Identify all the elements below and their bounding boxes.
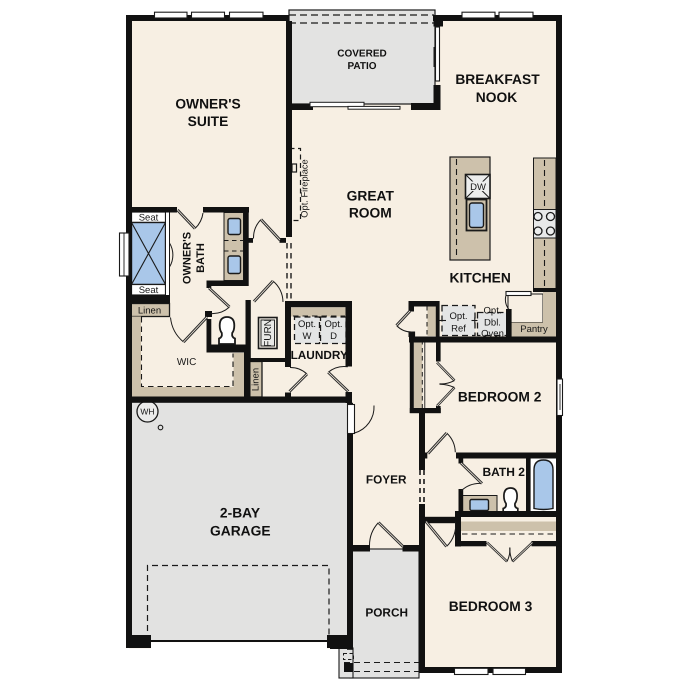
svg-text:Pantry: Pantry bbox=[520, 324, 548, 335]
svg-text:BATH: BATH bbox=[195, 243, 207, 273]
svg-text:WH: WH bbox=[140, 407, 154, 417]
svg-text:Ref: Ref bbox=[451, 324, 466, 335]
svg-text:FURN: FURN bbox=[263, 319, 274, 347]
svg-text:Oven: Oven bbox=[481, 328, 504, 339]
svg-text:D: D bbox=[330, 331, 337, 342]
svg-text:W: W bbox=[303, 331, 312, 342]
svg-text:FOYER: FOYER bbox=[366, 472, 407, 486]
svg-text:OWNER'S: OWNER'S bbox=[182, 232, 194, 284]
svg-text:Opt.: Opt. bbox=[450, 311, 468, 322]
svg-text:WIC: WIC bbox=[177, 357, 196, 368]
svg-text:Seat: Seat bbox=[139, 285, 159, 296]
svg-text:COVERED: COVERED bbox=[337, 49, 386, 60]
svg-text:2-BAY: 2-BAY bbox=[220, 505, 260, 520]
svg-text:GREAT: GREAT bbox=[347, 188, 395, 203]
svg-text:PATIO: PATIO bbox=[347, 61, 376, 72]
svg-text:LAUNDRY: LAUNDRY bbox=[291, 348, 348, 362]
svg-text:Opt.: Opt. bbox=[298, 319, 316, 330]
svg-text:BEDROOM 2: BEDROOM 2 bbox=[458, 390, 542, 405]
svg-text:Opt.: Opt. bbox=[484, 306, 502, 317]
svg-text:Linen: Linen bbox=[251, 368, 262, 391]
svg-text:BATH 2: BATH 2 bbox=[482, 465, 525, 479]
svg-text:OWNER'S: OWNER'S bbox=[175, 96, 240, 111]
svg-text:GARAGE: GARAGE bbox=[210, 523, 271, 538]
svg-text:BREAKFAST: BREAKFAST bbox=[455, 72, 540, 87]
svg-text:Seat: Seat bbox=[139, 213, 159, 224]
svg-text:KITCHEN: KITCHEN bbox=[450, 270, 511, 285]
svg-text:PORCH: PORCH bbox=[365, 606, 408, 620]
svg-text:SUITE: SUITE bbox=[188, 114, 229, 129]
svg-text:BEDROOM 3: BEDROOM 3 bbox=[449, 599, 533, 614]
svg-text:Dbl.: Dbl. bbox=[484, 318, 501, 329]
svg-text:DW: DW bbox=[470, 182, 486, 193]
svg-text:Opt. Fireplace: Opt. Fireplace bbox=[300, 159, 310, 217]
svg-text:Opt.: Opt. bbox=[325, 319, 343, 330]
svg-text:NOOK: NOOK bbox=[476, 90, 517, 105]
svg-text:Linen: Linen bbox=[138, 306, 161, 317]
svg-text:ROOM: ROOM bbox=[349, 205, 392, 220]
